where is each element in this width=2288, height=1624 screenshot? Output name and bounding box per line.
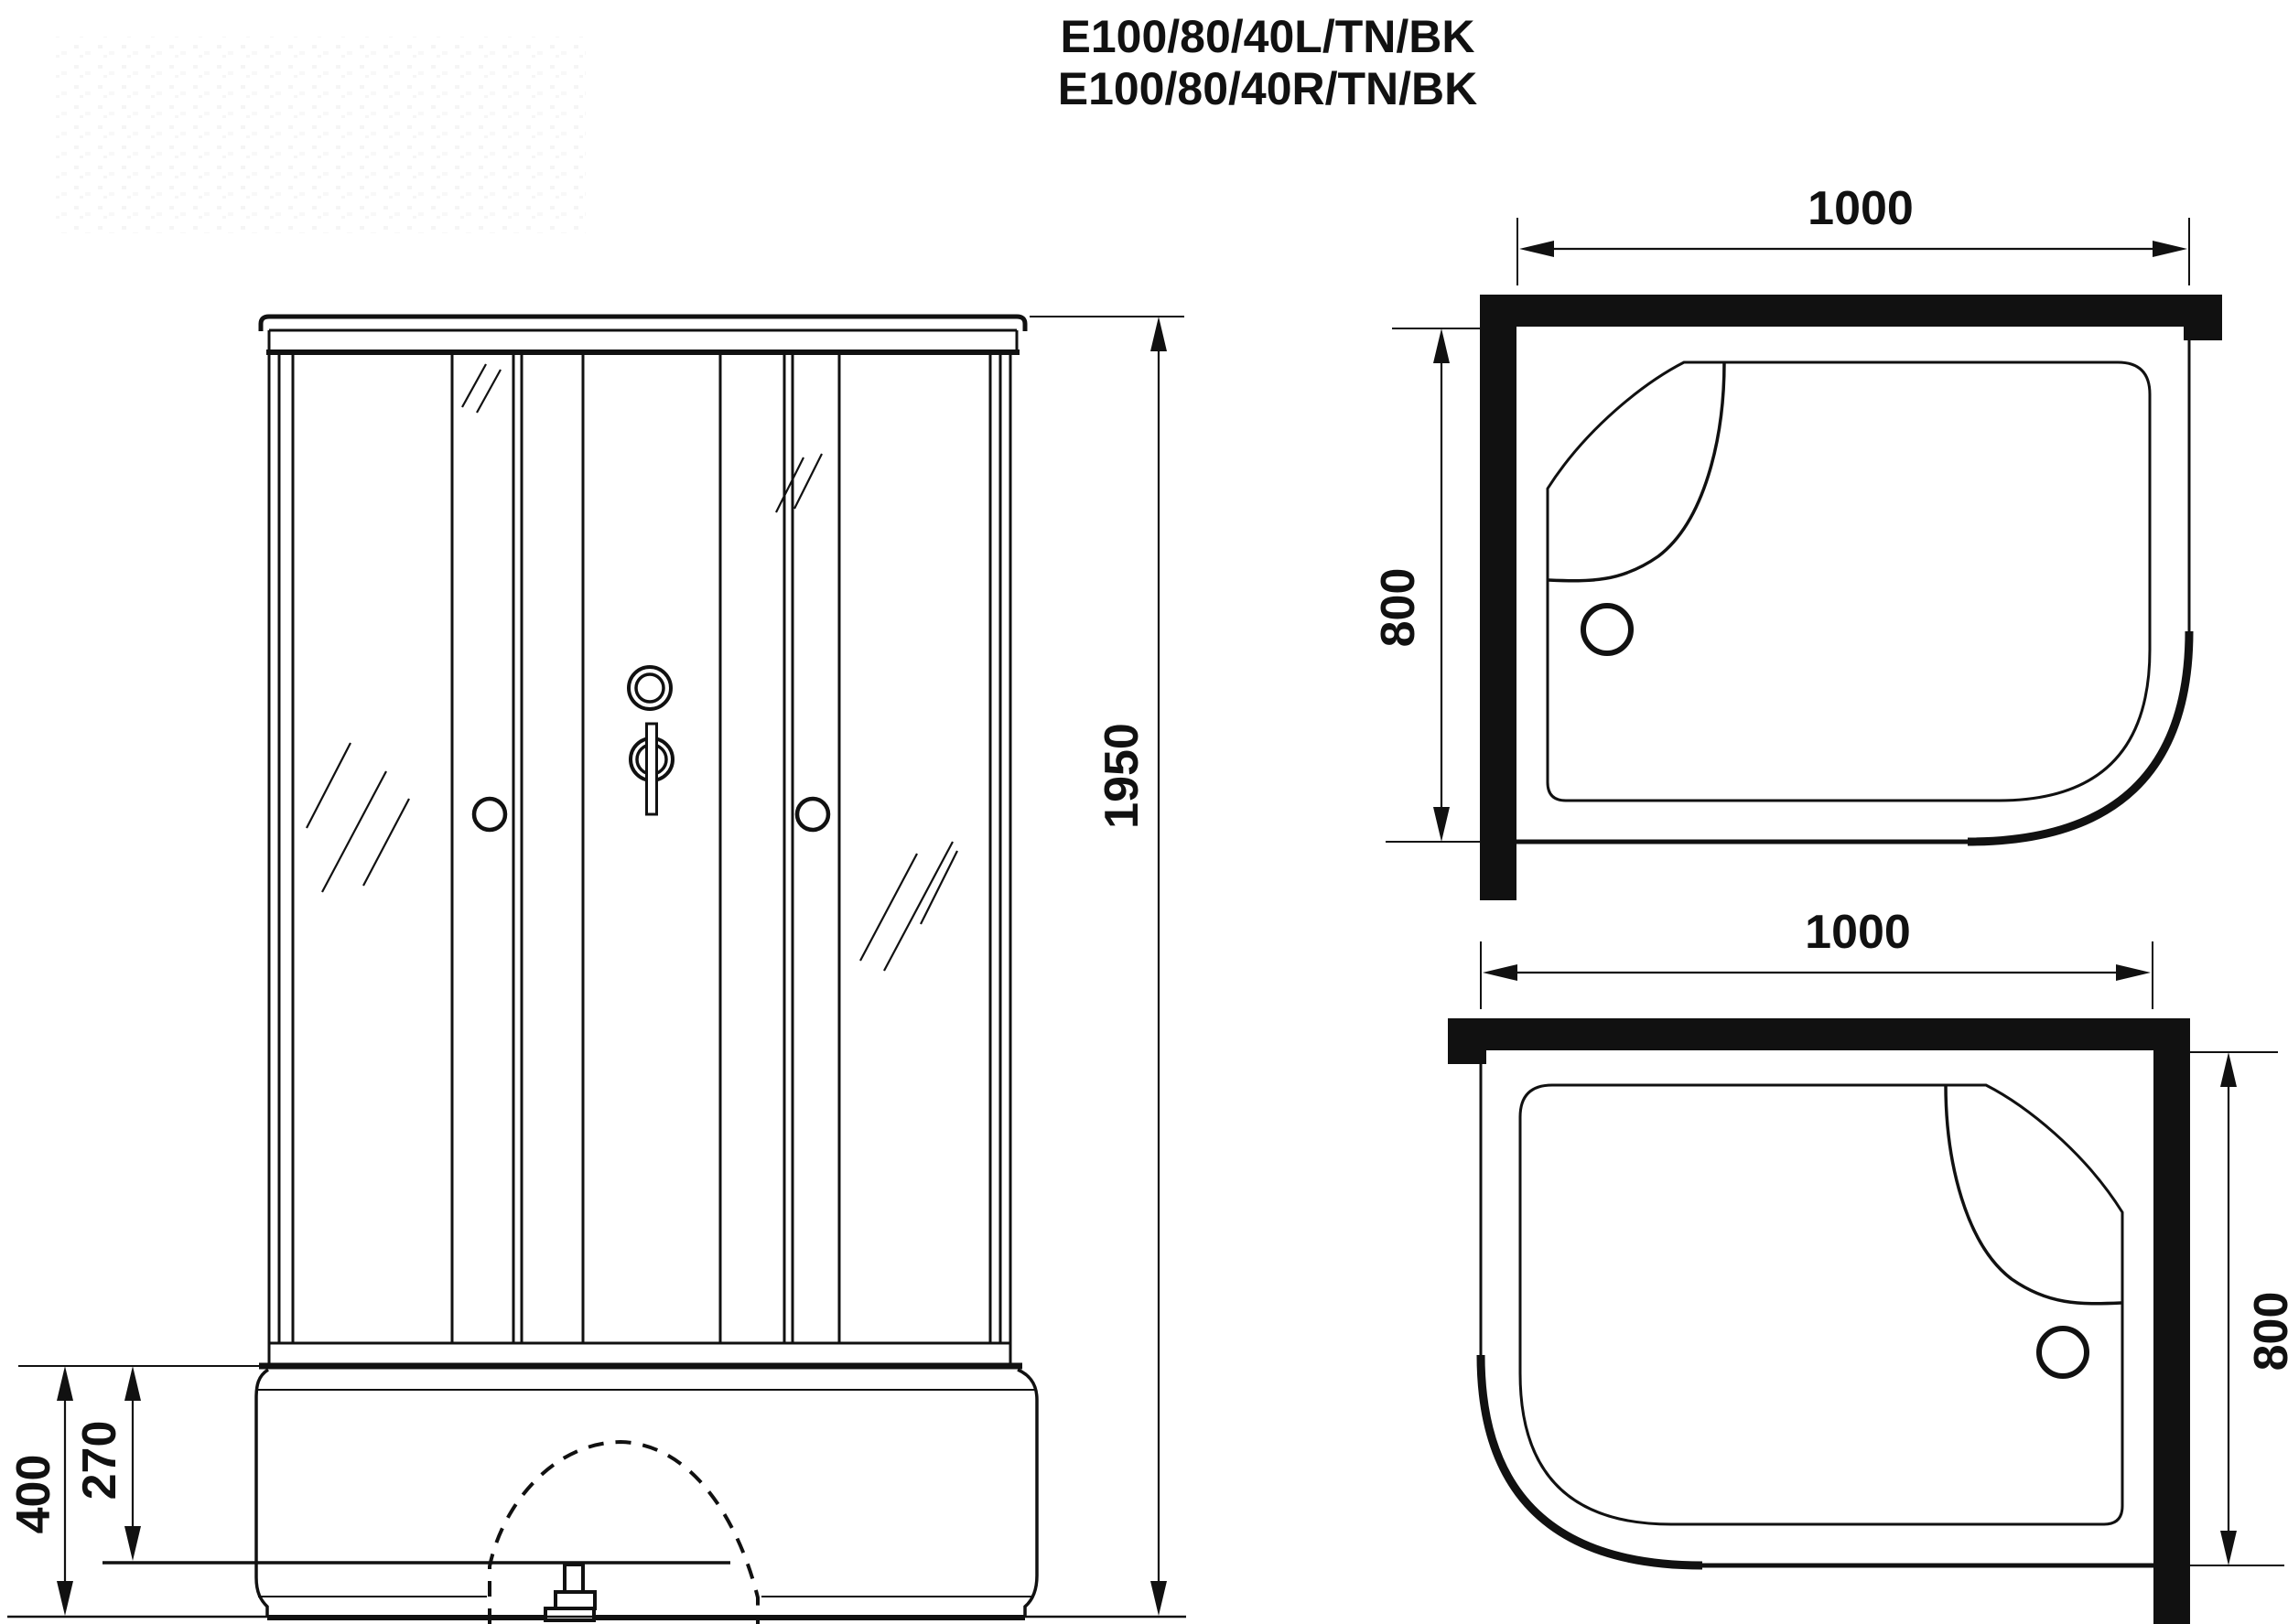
model-title-right: E100/80/40R/TN/BK — [1058, 63, 1478, 114]
top-right-seat — [1946, 1085, 2121, 1304]
access-panel-dashed — [490, 1442, 758, 1624]
tray-front-panel — [103, 1370, 1037, 1624]
top-left-tray-rim — [1548, 362, 2150, 801]
door-knob-right — [797, 799, 828, 830]
top-left-back-wall — [1480, 295, 2222, 327]
top-view-left: 1000 800 — [1372, 182, 2222, 900]
technical-drawing: E100/80/40L/TN/BK E100/80/40R/TN/BK — [0, 0, 2288, 1624]
tray-foot — [545, 1565, 595, 1620]
top-right-tray-rim — [1520, 1085, 2122, 1524]
watermark-noise — [55, 37, 586, 233]
top-view-right: 1000 800 — [1448, 906, 2288, 1624]
model-title-left: E100/80/40L/TN/BK — [1061, 11, 1475, 62]
top-left-dim-width: 1000 — [1517, 182, 2189, 285]
top-left-seat — [1549, 362, 1724, 581]
top-right-width-label: 1000 — [1805, 906, 1911, 959]
dim-overall-height-label: 1950 — [1095, 723, 1149, 829]
top-right-dim-width: 1000 — [1481, 906, 2153, 1009]
top-right-back-wall — [1448, 1018, 2190, 1050]
top-right-side-wall — [2153, 1018, 2190, 1624]
top-right-dim-depth: 800 — [2185, 1052, 2288, 1565]
dim-tray-height-label: 400 — [7, 1455, 60, 1534]
title-block: E100/80/40L/TN/BK E100/80/40R/TN/BK — [1058, 11, 1478, 114]
top-left-width-label: 1000 — [1808, 182, 1914, 235]
top-right-drain — [2039, 1328, 2087, 1376]
door-handle — [629, 667, 673, 814]
glass-reflections — [307, 364, 957, 971]
dimension-tray-inner-height: 270 — [73, 1366, 141, 1561]
dim-tray-inner-height-label: 270 — [73, 1421, 126, 1500]
top-left-drain — [1583, 606, 1631, 653]
top-left-side-wall — [1480, 295, 1516, 900]
front-view — [103, 317, 1037, 1624]
top-left-dim-depth: 800 — [1372, 328, 1484, 842]
top-left-depth-label: 800 — [1372, 568, 1425, 648]
door-knob-left — [474, 799, 505, 830]
glass-panel-frames — [269, 353, 1010, 1343]
top-right-depth-label: 800 — [2245, 1292, 2288, 1371]
